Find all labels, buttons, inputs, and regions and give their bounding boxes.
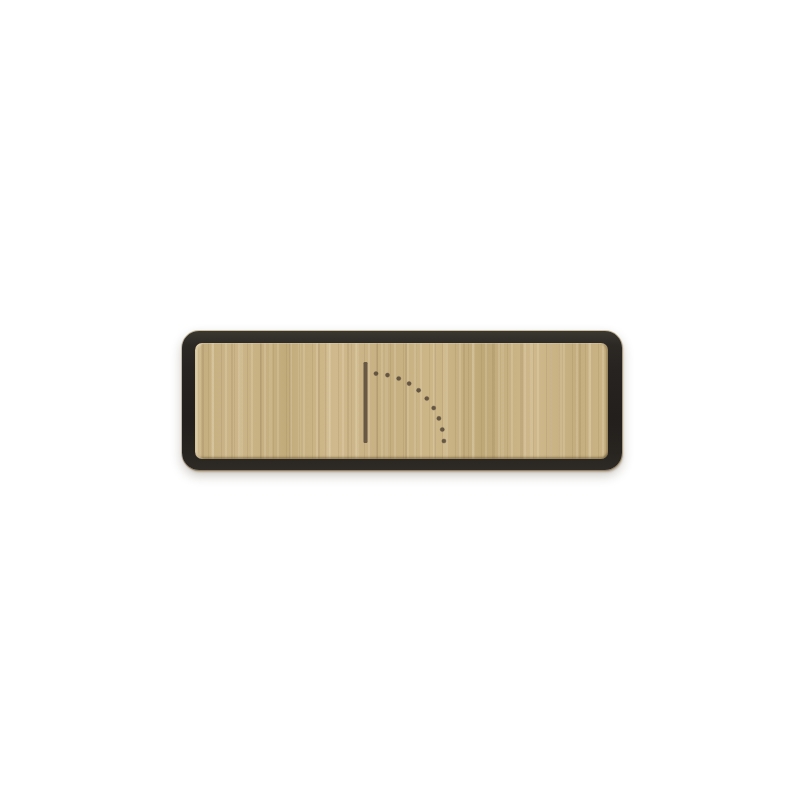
wood-panel	[195, 343, 608, 459]
page-background	[0, 0, 807, 807]
door-sign-plate[interactable]	[182, 331, 622, 470]
